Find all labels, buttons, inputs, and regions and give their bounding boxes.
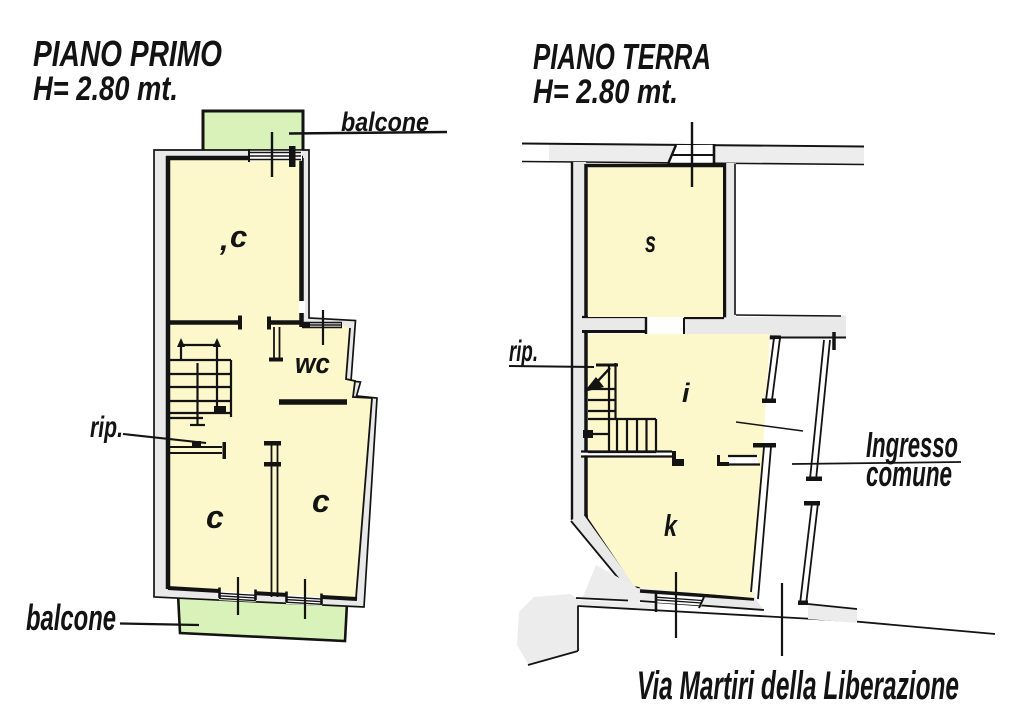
svg-text:c: c <box>230 219 247 254</box>
svg-text:i: i <box>682 378 690 408</box>
svg-text:H= 2.80 mt.: H= 2.80 mt. <box>33 70 178 108</box>
svg-text:k: k <box>664 508 678 543</box>
svg-text:c: c <box>206 499 224 535</box>
svg-text:PIANO PRIMO: PIANO PRIMO <box>33 33 222 74</box>
svg-text:rip.: rip. <box>90 411 123 444</box>
svg-text:H= 2.80 mt.: H= 2.80 mt. <box>533 73 678 111</box>
svg-text:c: c <box>312 483 330 519</box>
svg-text:,: , <box>219 222 229 257</box>
svg-text:wc: wc <box>295 348 330 380</box>
svg-text:balcone: balcone <box>26 597 116 638</box>
svg-text:PIANO TERRA: PIANO TERRA <box>533 36 711 77</box>
svg-text:rip.: rip. <box>509 335 538 368</box>
svg-text:Via Martiri della Liberazione: Via Martiri della Liberazione <box>637 664 959 708</box>
svg-text:comune: comune <box>866 453 952 494</box>
svg-text:s: s <box>645 226 656 259</box>
